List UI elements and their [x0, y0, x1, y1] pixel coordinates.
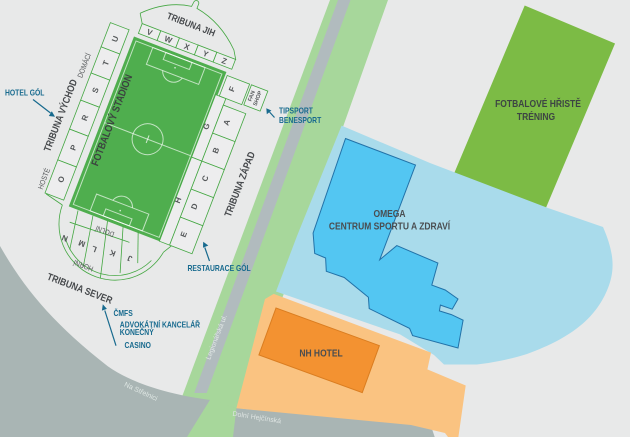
svg-text:CENTRUM SPORTU A ZDRAVÍ: CENTRUM SPORTU A ZDRAVÍ — [329, 221, 451, 232]
svg-text:CASINO: CASINO — [125, 340, 152, 350]
svg-text:BENESPORT: BENESPORT — [279, 115, 322, 125]
svg-text:OMEGA: OMEGA — [373, 208, 405, 219]
svg-text:HOTEL GÓL: HOTEL GÓL — [5, 88, 45, 98]
svg-text:RESTAURACE GÓL: RESTAURACE GÓL — [188, 263, 252, 273]
svg-text:ČMFS: ČMFS — [114, 308, 133, 318]
svg-text:FOTBALOVÉ HŘISTĚ: FOTBALOVÉ HŘISTĚ — [495, 97, 581, 109]
svg-text:TIPSPORT: TIPSPORT — [279, 106, 313, 116]
svg-text:TRÉNING: TRÉNING — [517, 111, 555, 122]
svg-text:KONEČNÝ: KONEČNÝ — [120, 327, 154, 337]
svg-text:NH HOTEL: NH HOTEL — [299, 348, 343, 359]
